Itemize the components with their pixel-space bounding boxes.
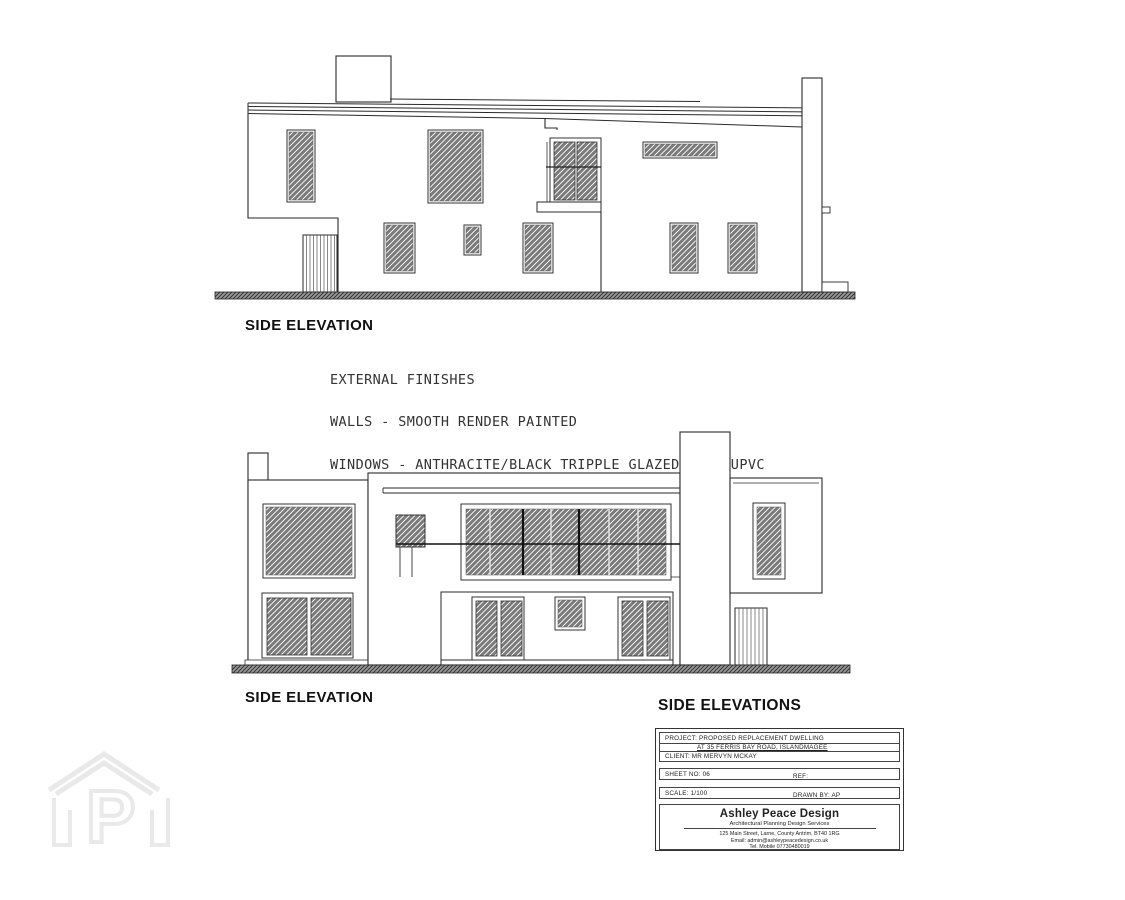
bottom-elevation-drawing (225, 425, 865, 685)
company-box: Ashley Peace Design Architectural Planni… (659, 804, 900, 850)
drawn-by-text: DRAWN BY: AP (793, 790, 840, 801)
watermark-letter: P (86, 775, 135, 854)
top-elevation-title: SIDE ELEVATION (245, 317, 373, 334)
company-address: 125 Main Street, Larne, County Antrim, B… (660, 831, 899, 838)
roof-band (248, 99, 818, 127)
ref-text: REF: (793, 771, 808, 782)
right-parapet (802, 78, 848, 292)
sheet-no-text: SHEET NO: 06 (665, 771, 710, 778)
company-tagline: Architectural Planning Design Services (660, 821, 899, 827)
company-email: Email: admin@ashleypeacedesign.co.uk (660, 838, 899, 845)
watermark-logo: P (46, 746, 176, 854)
central-lower-wall (441, 592, 673, 665)
top-elevation-drawing (210, 50, 870, 305)
ground-line (232, 665, 850, 673)
scale-text: SCALE: 1/100 (665, 790, 707, 797)
drawing-sheet: SIDE ELEVATION EXTERNAL FINISHES WALLS -… (0, 0, 1125, 900)
balcony-door (537, 138, 601, 212)
lower-windows (384, 223, 757, 273)
right-block (730, 478, 822, 593)
client-row: CLIENT: MR MERVYN MCKAY (659, 751, 900, 762)
bottom-elevation-title: SIDE ELEVATION (245, 689, 373, 706)
title-block-heading: SIDE ELEVATIONS (658, 697, 801, 715)
company-divider (684, 828, 876, 829)
ground-line (215, 292, 855, 299)
left-block (245, 480, 371, 665)
company-tel: Tel. Mobile 07730480019 (660, 844, 899, 851)
chimney (336, 56, 391, 102)
upper-windows (287, 130, 717, 203)
central-tower (680, 432, 730, 665)
address-text: AT 35 FERRIS BAY ROAD, ISLANDMAGEE (697, 744, 828, 751)
finishes-line: EXTERNAL FINISHES (330, 373, 765, 387)
scale-row: SCALE: 1/100 DRAWN BY: AP (659, 787, 900, 799)
client-text: CLIENT: MR MERVYN MCKAY (665, 753, 757, 760)
company-name: Ashley Peace Design (660, 808, 899, 820)
sheet-row: SHEET NO: 06 REF: (659, 768, 900, 780)
slatted-gate (303, 235, 337, 292)
slatted-screen (735, 608, 767, 665)
project-text: PROJECT: PROPOSED REPLACEMENT DWELLING (665, 735, 824, 742)
title-block: PROJECT: PROPOSED REPLACEMENT DWELLING A… (655, 728, 904, 851)
